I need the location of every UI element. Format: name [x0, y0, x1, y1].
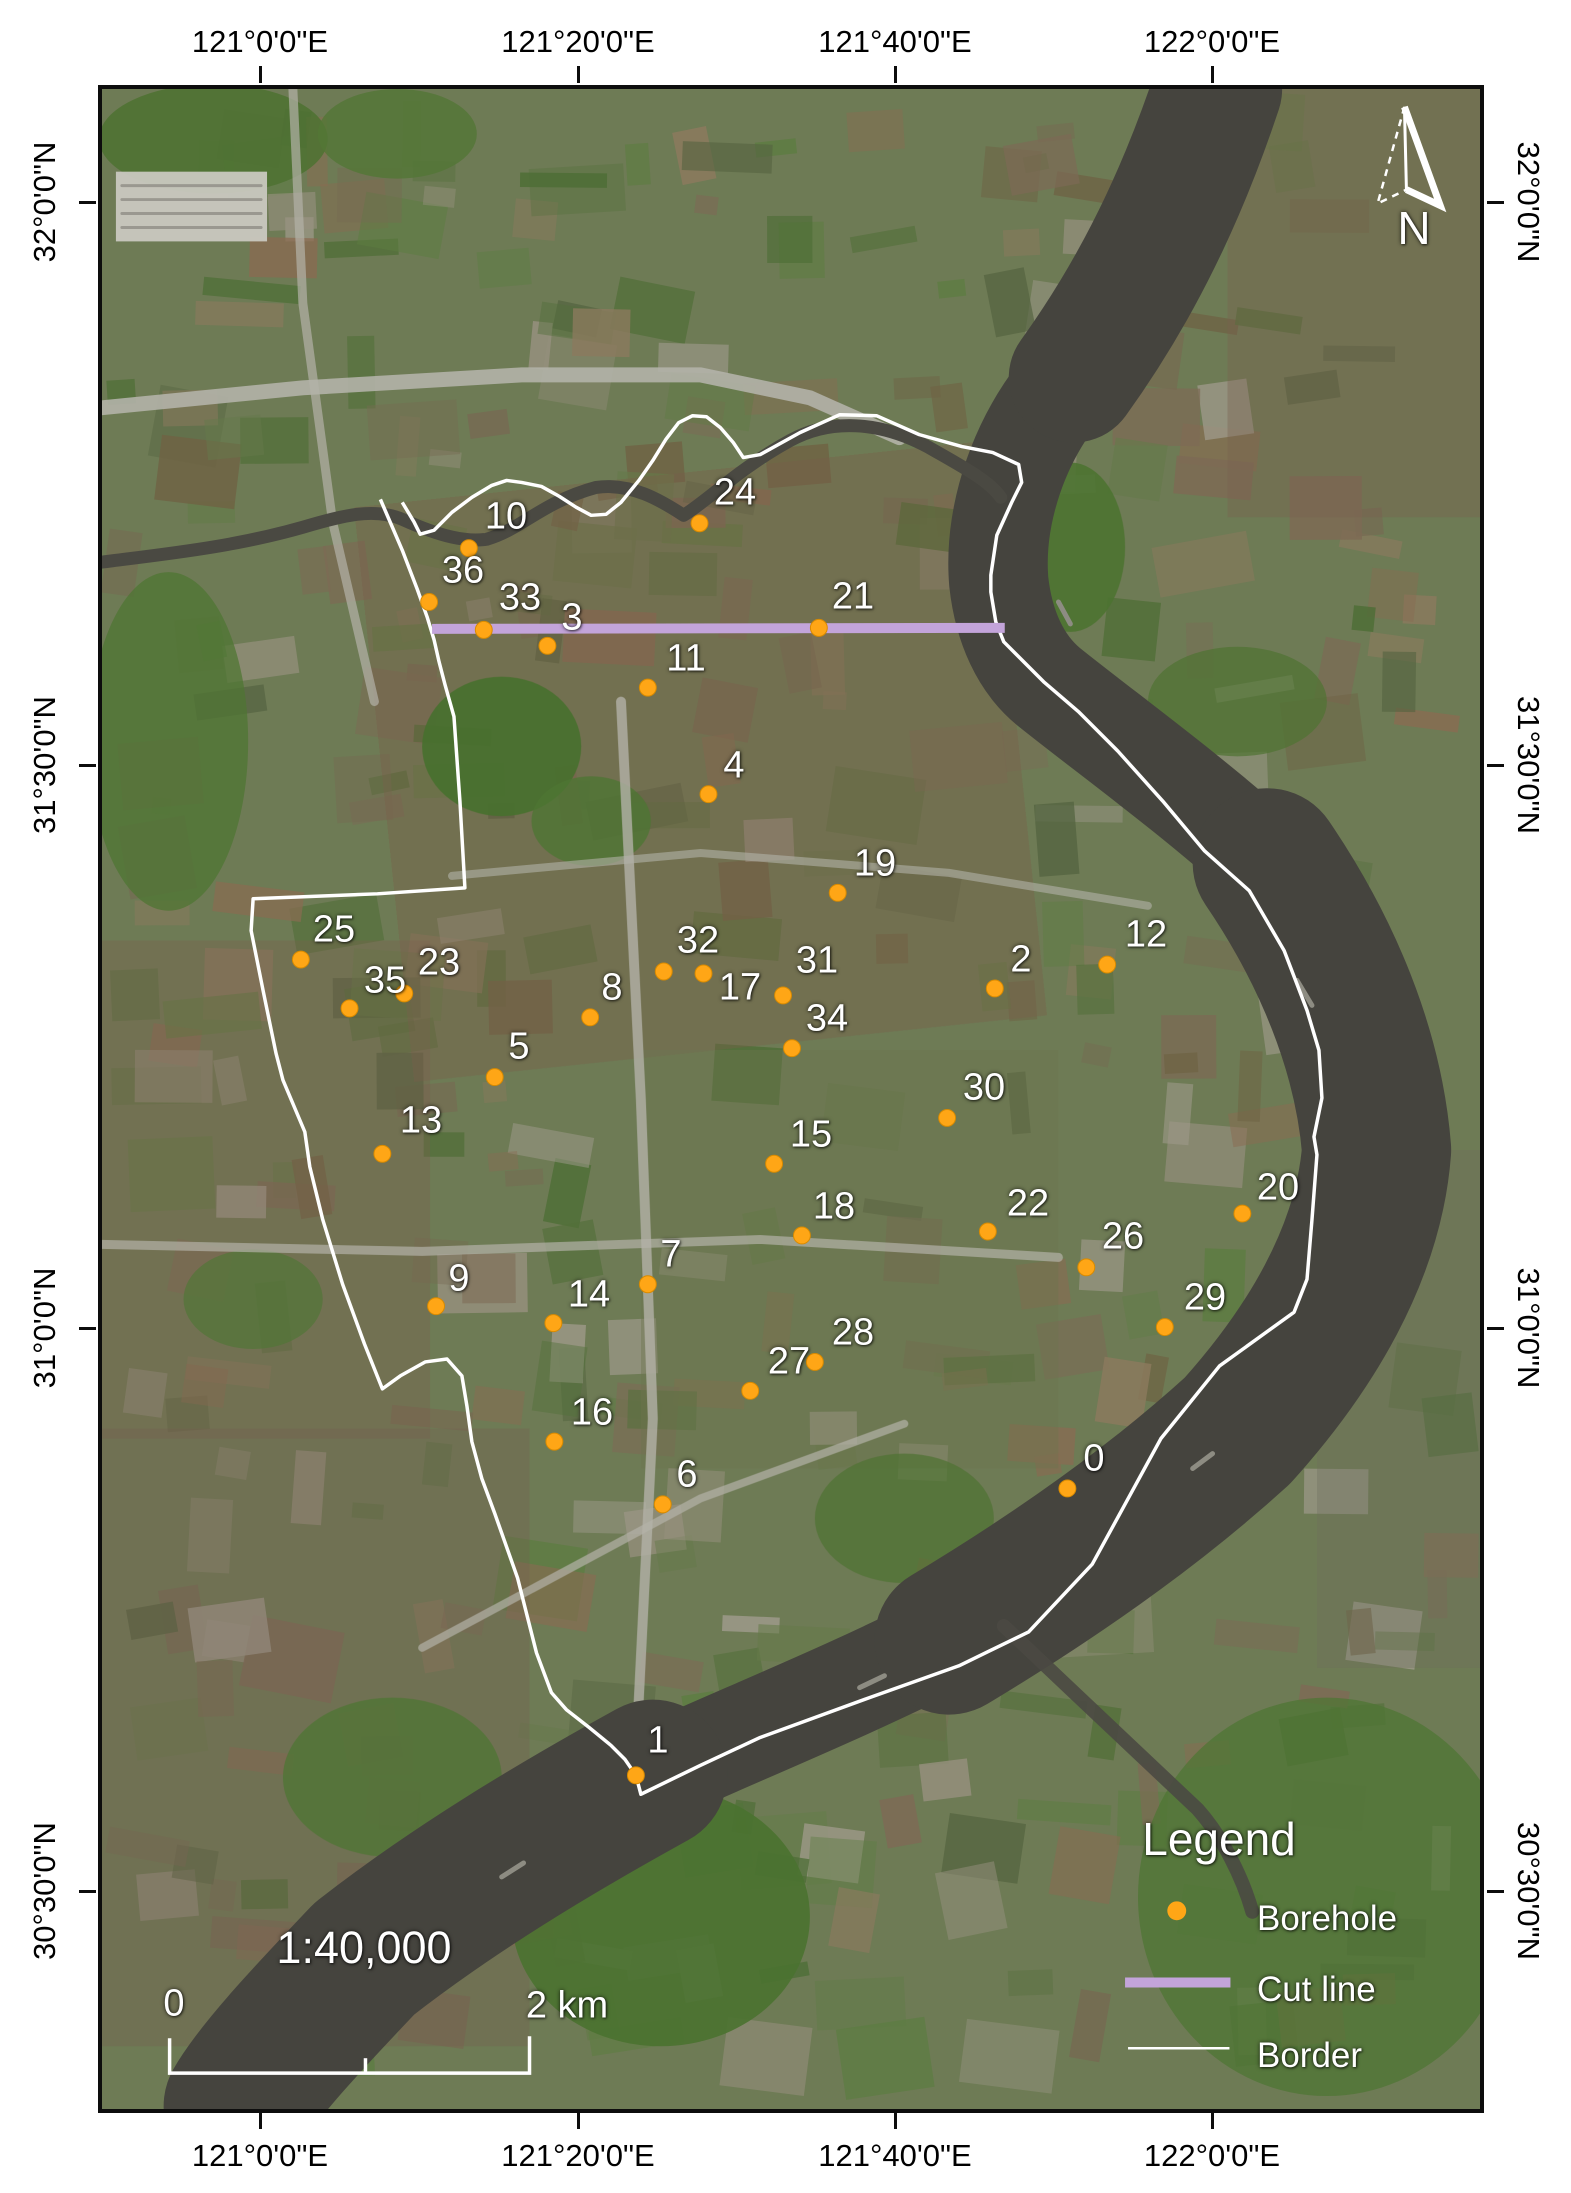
tick-right	[1487, 764, 1504, 767]
terrain-patch	[1102, 597, 1161, 661]
tick-right	[1487, 201, 1504, 204]
terrain-patch	[682, 141, 773, 174]
axis-label-left: 32°0'0"N	[27, 142, 63, 263]
borehole-dot-6[interactable]	[654, 1496, 671, 1513]
borehole-dot-21[interactable]	[810, 619, 827, 636]
borehole-dot-2[interactable]	[986, 980, 1003, 997]
map-page: Legend 1:40,000 0 2 km N 012345678910111…	[0, 0, 1571, 2193]
tick-bottom	[894, 2112, 897, 2129]
axis-label-right: 30°30'0"N	[1510, 1822, 1546, 1960]
tick-top	[577, 66, 580, 83]
axis-label-left: 31°0'0"N	[27, 1268, 63, 1389]
axis-label-bottom: 121°40'0"E	[818, 2138, 971, 2174]
satellite-map	[102, 89, 1480, 2109]
borehole-dot-23[interactable]	[396, 985, 413, 1002]
terrain-patch	[505, 1169, 544, 1187]
terrain-patch	[423, 186, 456, 208]
terrain-patch	[1107, 437, 1167, 501]
terrain-patch	[520, 172, 607, 187]
terrain-patch	[836, 2017, 935, 2100]
tick-top	[894, 66, 897, 83]
terrain-patch	[846, 109, 905, 152]
axis-label-right: 31°0'0"N	[1510, 1268, 1546, 1389]
terrain-patch	[249, 237, 318, 279]
borehole-dot-25[interactable]	[292, 951, 309, 968]
borehole-dot-9[interactable]	[428, 1298, 445, 1315]
terrain-patch	[268, 192, 317, 231]
map-canvas[interactable]: Legend 1:40,000 0 2 km N 012345678910111…	[98, 85, 1484, 2113]
borehole-dot-8[interactable]	[582, 1009, 599, 1026]
terrain-patch	[297, 546, 331, 595]
borehole-dot-12[interactable]	[1099, 956, 1116, 973]
tick-top	[1211, 66, 1214, 83]
terrain-patch	[347, 336, 375, 409]
terrain-patch	[195, 301, 284, 327]
tick-left	[79, 1327, 96, 1330]
borehole-dot-1[interactable]	[627, 1767, 644, 1784]
tick-left	[79, 201, 96, 204]
terrain-patch	[1049, 1826, 1121, 1904]
terrain-patch	[694, 195, 719, 216]
terrain-patch	[767, 216, 812, 263]
borehole-dot-33[interactable]	[475, 621, 492, 638]
borehole-dot-29[interactable]	[1156, 1319, 1173, 1336]
terrain-patch	[477, 248, 532, 289]
borehole-dot-4[interactable]	[700, 786, 717, 803]
borehole-dot-10[interactable]	[460, 540, 477, 557]
terrain-patch	[204, 414, 264, 460]
tick-bottom	[259, 2112, 262, 2129]
borehole-dot-18[interactable]	[793, 1227, 810, 1244]
tick-right	[1487, 1890, 1504, 1893]
axis-label-bottom: 122°0'0"E	[1144, 2138, 1280, 2174]
borehole-dot-28[interactable]	[806, 1353, 823, 1370]
terrain-patch	[472, 1386, 525, 1426]
terrain-patch	[367, 399, 460, 460]
axis-label-left: 30°30'0"N	[27, 1822, 63, 1960]
axis-label-top: 121°0'0"E	[192, 24, 328, 60]
terrain-patch	[959, 2019, 1060, 2094]
terrain-patch	[1034, 802, 1080, 877]
terrain-patch	[488, 1151, 519, 1172]
borehole-dot-22[interactable]	[979, 1223, 996, 1240]
borehole-dot-17[interactable]	[695, 965, 712, 982]
borehole-dot-5[interactable]	[486, 1069, 503, 1086]
terrain-patch	[930, 383, 968, 433]
tick-right	[1487, 1327, 1504, 1330]
borehole-dot-19[interactable]	[829, 884, 846, 901]
axis-label-top: 121°40'0"E	[818, 24, 971, 60]
tick-top	[259, 66, 262, 83]
borehole-dot-15[interactable]	[766, 1155, 783, 1172]
borehole-dot-16[interactable]	[546, 1433, 563, 1450]
terrain-patch	[1382, 652, 1416, 713]
borehole-dot-14[interactable]	[545, 1315, 562, 1332]
borehole-dot-34[interactable]	[784, 1040, 801, 1057]
borehole-dot-7[interactable]	[639, 1276, 656, 1293]
borehole-dot-13[interactable]	[374, 1145, 391, 1162]
terrain-patch	[1042, 901, 1084, 967]
borehole-dot-36[interactable]	[421, 594, 438, 611]
tick-left	[79, 1890, 96, 1893]
terrain-patch	[572, 308, 631, 357]
axis-label-top: 122°0'0"E	[1144, 24, 1280, 60]
borehole-dot-11[interactable]	[639, 679, 656, 696]
terrain-patch	[1164, 1052, 1199, 1074]
terrain-patch	[1003, 229, 1040, 257]
terrain-patch	[1351, 605, 1375, 632]
borehole-dot-30[interactable]	[939, 1109, 956, 1126]
cut-line[interactable]	[432, 628, 1005, 629]
borehole-dot-0[interactable]	[1059, 1480, 1076, 1497]
tick-left	[79, 764, 96, 767]
axis-label-left: 31°30'0"N	[27, 696, 63, 834]
axis-label-top: 121°20'0"E	[501, 24, 654, 60]
legend-swatch-borehole	[1167, 1901, 1186, 1920]
terrain-patch	[1237, 1051, 1262, 1122]
terrain-patch	[542, 1219, 603, 1284]
terrain-patch	[625, 143, 651, 186]
tick-bottom	[1211, 2112, 1214, 2129]
borehole-dot-32[interactable]	[655, 963, 672, 980]
terrain-patch	[462, 1254, 516, 1304]
borehole-dot-27[interactable]	[742, 1382, 759, 1399]
borehole-dot-26[interactable]	[1078, 1259, 1095, 1276]
borehole-dot-3[interactable]	[539, 637, 556, 654]
borehole-dot-31[interactable]	[775, 987, 792, 1004]
axis-label-bottom: 121°0'0"E	[192, 2138, 328, 2174]
tick-bottom	[577, 2112, 580, 2129]
axis-label-right: 31°30'0"N	[1510, 696, 1546, 834]
terrain-patch	[1008, 1969, 1053, 1996]
borehole-dot-20[interactable]	[1234, 1205, 1251, 1222]
borehole-dot-24[interactable]	[691, 515, 708, 532]
terrain-patch	[1163, 1082, 1194, 1145]
terrain-patch	[919, 1758, 972, 1801]
terrain-patch	[937, 279, 966, 299]
axis-label-bottom: 121°20'0"E	[501, 2138, 654, 2174]
axis-label-right: 32°0'0"N	[1510, 142, 1546, 263]
terrain-patch	[529, 163, 626, 216]
borehole-dot-35[interactable]	[341, 1000, 358, 1017]
